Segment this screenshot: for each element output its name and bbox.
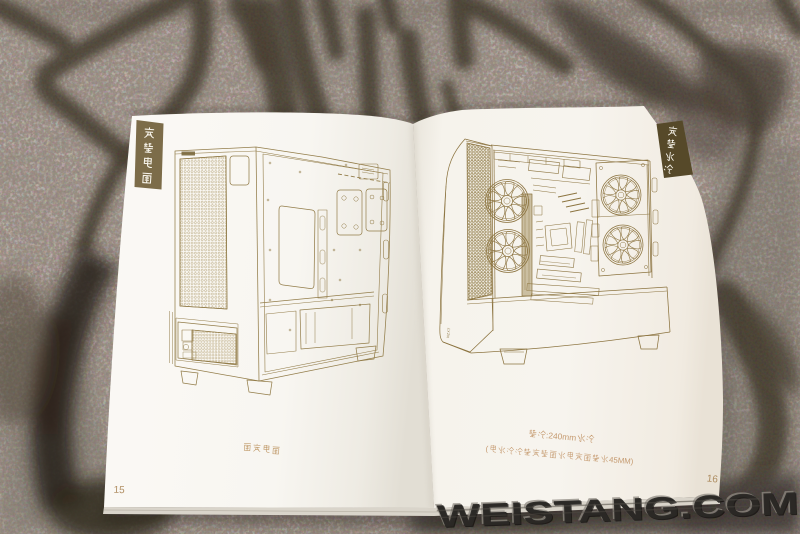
svg-text:15: 15 [113,485,125,496]
svg-text:16: 16 [706,473,719,485]
